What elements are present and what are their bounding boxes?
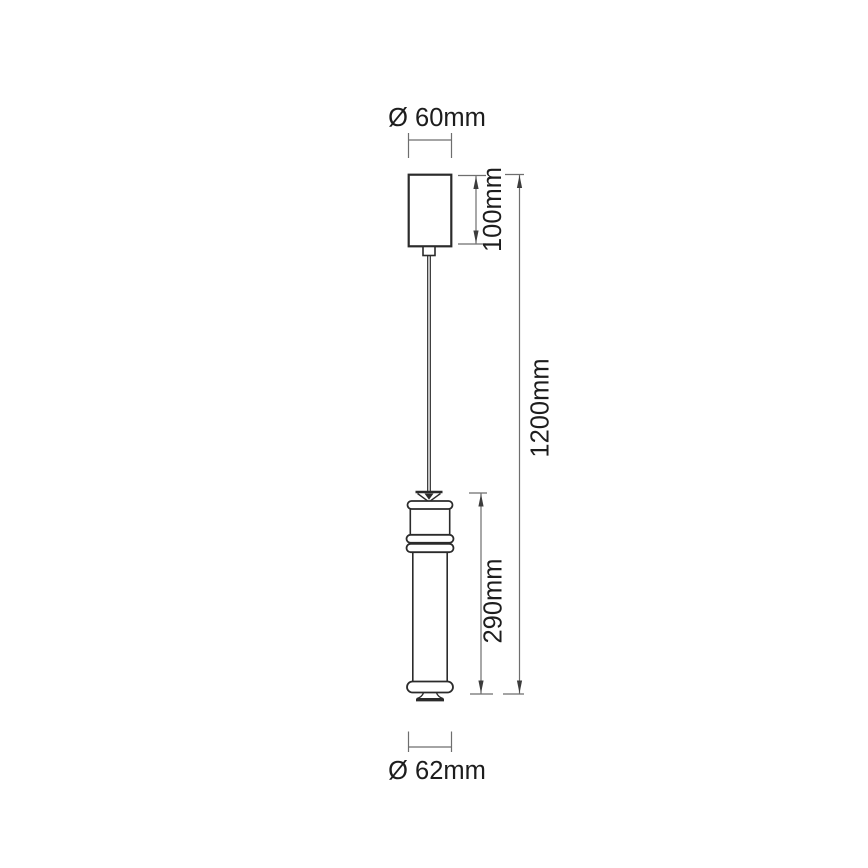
suspension-cable: [428, 256, 431, 492]
lamp-ring-band-upper: [407, 535, 454, 543]
overall-height-label: 1200mm: [527, 358, 555, 457]
canopy-diameter-label: Ø 60mm: [388, 104, 486, 132]
bottom-finial: [416, 693, 444, 700]
body-height-label: 290mm: [480, 558, 508, 643]
dimension-canopy-diameter: Ø 60mm: [388, 104, 486, 158]
dim100-arrow-up: [473, 176, 478, 189]
canopy-height-label: 100mm: [479, 167, 507, 252]
dimension-body-diameter: Ø 62mm: [388, 732, 486, 786]
dimension-body-height: 290mm: [469, 493, 508, 694]
glass-tube: [413, 552, 447, 682]
cable-gland: [423, 247, 435, 256]
dim290-arrow-down: [478, 681, 483, 694]
pendant-lamp-dimension-drawing: Ø 60mm 100mm 1200mm 290mm: [0, 0, 868, 868]
foot-flare: [417, 693, 443, 699]
dim1200-arrow-up: [517, 175, 522, 188]
lamp-cap-body: [410, 509, 449, 536]
lamp-bottom-ring: [407, 682, 453, 693]
body-diameter-label: Ø 62mm: [388, 757, 486, 785]
lamp-cap-top-ring: [408, 501, 453, 509]
top-finial: [416, 492, 443, 501]
dim290-arrow-up: [478, 494, 483, 507]
lamp-ring-band-lower: [407, 544, 454, 552]
drawing-canvas: Ø 60mm 100mm 1200mm 290mm: [0, 0, 868, 868]
dim1200-arrow-down: [517, 681, 522, 694]
ceiling-canopy: [409, 175, 452, 247]
dimension-overall-height: 1200mm: [503, 175, 555, 695]
dimension-canopy-height: 100mm: [458, 167, 507, 252]
pendant-light-figure: [407, 175, 454, 700]
dim100-arrow-down: [473, 231, 478, 244]
